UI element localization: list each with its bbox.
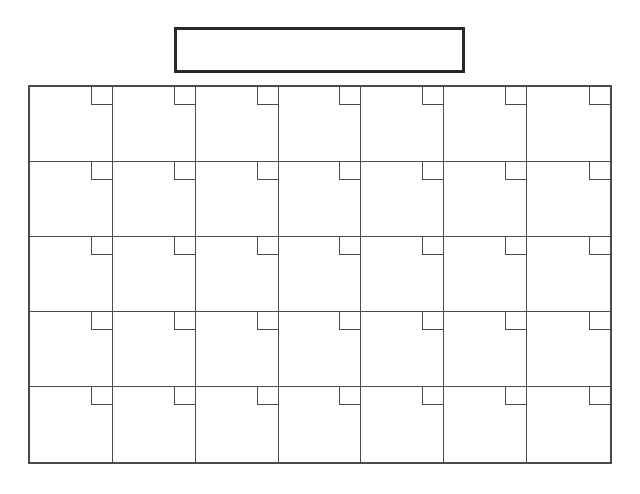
date-notch[interactable] bbox=[174, 162, 195, 180]
date-notch[interactable] bbox=[91, 387, 112, 405]
day-cell[interactable] bbox=[444, 312, 527, 387]
date-notch[interactable] bbox=[174, 237, 195, 255]
calendar-title-field[interactable] bbox=[174, 27, 465, 73]
day-cell[interactable] bbox=[444, 237, 527, 312]
date-notch[interactable] bbox=[422, 87, 443, 105]
day-cell[interactable] bbox=[279, 387, 362, 462]
date-notch[interactable] bbox=[339, 312, 360, 330]
day-cell[interactable] bbox=[527, 87, 610, 162]
day-cell[interactable] bbox=[279, 162, 362, 237]
day-cell[interactable] bbox=[444, 162, 527, 237]
day-cell[interactable] bbox=[361, 162, 444, 237]
day-cell[interactable] bbox=[113, 312, 196, 387]
day-cell[interactable] bbox=[113, 237, 196, 312]
date-notch[interactable] bbox=[505, 162, 526, 180]
day-cell[interactable] bbox=[444, 387, 527, 462]
date-notch[interactable] bbox=[91, 312, 112, 330]
day-cell[interactable] bbox=[113, 387, 196, 462]
calendar-grid bbox=[28, 85, 612, 464]
date-notch[interactable] bbox=[339, 87, 360, 105]
day-cell[interactable] bbox=[444, 87, 527, 162]
date-notch[interactable] bbox=[257, 387, 278, 405]
day-cell[interactable] bbox=[113, 162, 196, 237]
date-notch[interactable] bbox=[174, 87, 195, 105]
day-cell[interactable] bbox=[30, 387, 113, 462]
day-cell[interactable] bbox=[196, 312, 279, 387]
day-cell[interactable] bbox=[361, 312, 444, 387]
day-cell[interactable] bbox=[196, 87, 279, 162]
date-notch[interactable] bbox=[505, 87, 526, 105]
date-notch[interactable] bbox=[174, 312, 195, 330]
day-cell[interactable] bbox=[361, 387, 444, 462]
day-cell[interactable] bbox=[30, 312, 113, 387]
day-cell[interactable] bbox=[196, 237, 279, 312]
day-cell[interactable] bbox=[527, 387, 610, 462]
date-notch[interactable] bbox=[257, 87, 278, 105]
date-notch[interactable] bbox=[257, 162, 278, 180]
date-notch[interactable] bbox=[339, 237, 360, 255]
day-cell[interactable] bbox=[279, 237, 362, 312]
date-notch[interactable] bbox=[339, 387, 360, 405]
date-notch[interactable] bbox=[91, 162, 112, 180]
day-cell[interactable] bbox=[30, 162, 113, 237]
date-notch[interactable] bbox=[589, 312, 610, 330]
day-cell[interactable] bbox=[30, 237, 113, 312]
day-cell[interactable] bbox=[196, 162, 279, 237]
date-notch[interactable] bbox=[589, 87, 610, 105]
date-notch[interactable] bbox=[422, 237, 443, 255]
date-notch[interactable] bbox=[257, 237, 278, 255]
day-cell[interactable] bbox=[279, 87, 362, 162]
day-cell[interactable] bbox=[30, 87, 113, 162]
date-notch[interactable] bbox=[422, 162, 443, 180]
date-notch[interactable] bbox=[505, 237, 526, 255]
date-notch[interactable] bbox=[91, 87, 112, 105]
day-cell[interactable] bbox=[196, 387, 279, 462]
date-notch[interactable] bbox=[422, 312, 443, 330]
calendar-template-page bbox=[0, 0, 640, 494]
day-cell[interactable] bbox=[527, 237, 610, 312]
date-notch[interactable] bbox=[91, 237, 112, 255]
date-notch[interactable] bbox=[505, 387, 526, 405]
date-notch[interactable] bbox=[257, 312, 278, 330]
day-cell[interactable] bbox=[527, 162, 610, 237]
day-cell[interactable] bbox=[361, 87, 444, 162]
date-notch[interactable] bbox=[589, 162, 610, 180]
date-notch[interactable] bbox=[422, 387, 443, 405]
date-notch[interactable] bbox=[174, 387, 195, 405]
date-notch[interactable] bbox=[589, 387, 610, 405]
day-cell[interactable] bbox=[527, 312, 610, 387]
date-notch[interactable] bbox=[339, 162, 360, 180]
date-notch[interactable] bbox=[505, 312, 526, 330]
day-cell[interactable] bbox=[279, 312, 362, 387]
day-cell[interactable] bbox=[361, 237, 444, 312]
date-notch[interactable] bbox=[589, 237, 610, 255]
day-cell[interactable] bbox=[113, 87, 196, 162]
